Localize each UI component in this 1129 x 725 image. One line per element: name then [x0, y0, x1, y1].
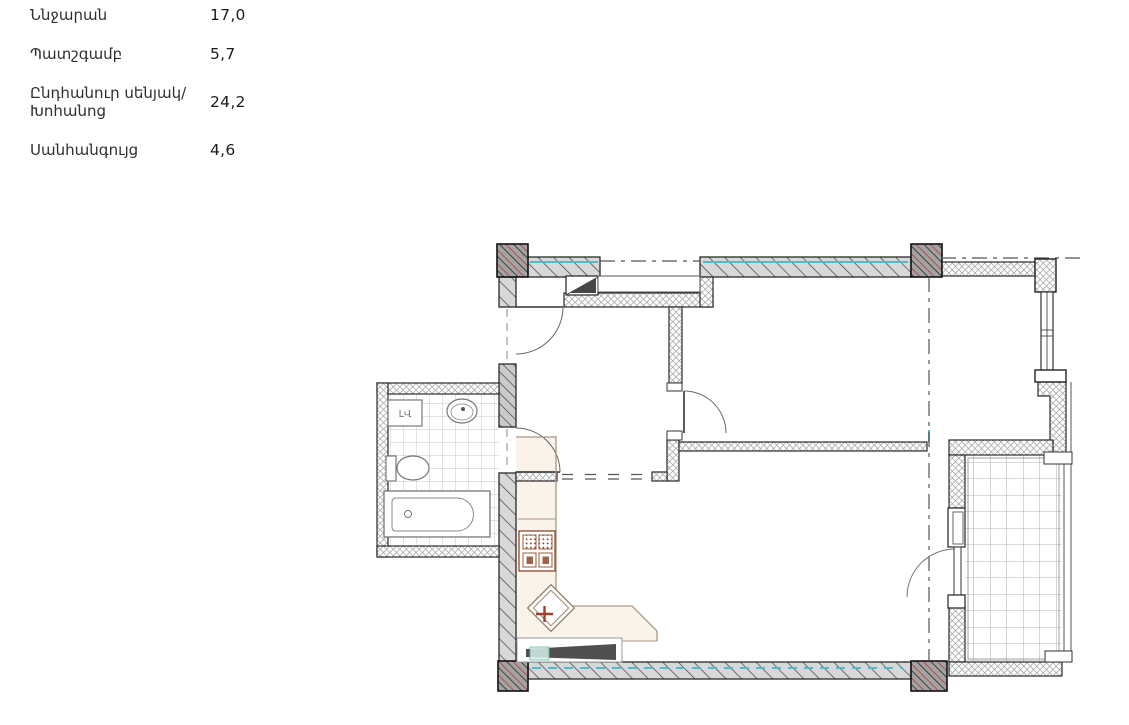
left-wall-lower	[499, 473, 516, 662]
bedroom-door-arc	[684, 391, 726, 433]
column-bottom-left	[498, 661, 528, 691]
kitchen-partition-stub	[652, 472, 667, 481]
bottom-wall	[528, 662, 911, 679]
kitchen-partition	[516, 472, 557, 481]
wall-niche	[598, 276, 700, 292]
column-bottom-right	[911, 661, 947, 691]
entry-door-arc	[516, 307, 563, 354]
toilet	[386, 456, 429, 481]
kitchen-stove	[519, 531, 555, 571]
bathroom-north-wall	[377, 383, 499, 394]
bedroom-west-wall	[669, 307, 682, 383]
column-top-right	[911, 244, 942, 277]
floorplan-page: Ննջարան 17,0 Պատշգամբ 5,7 Ընդհանուր սենյ…	[0, 0, 1129, 725]
top-wall-right-segment	[700, 257, 911, 277]
column-top-left	[497, 244, 528, 277]
balcony-west-wall-lower	[949, 607, 965, 662]
bathtub	[384, 491, 490, 537]
balcony-sill-top	[1044, 452, 1072, 464]
floor-plan-drawing: ԼՎ	[0, 0, 1129, 725]
duct-niche-right-wall	[700, 277, 713, 307]
ventilation-shaft	[566, 276, 700, 295]
entry-door	[507, 307, 563, 362]
balcony-west-wall-upper	[949, 455, 965, 508]
balcony-door-arc	[907, 549, 955, 597]
balcony-north-wall	[949, 440, 1053, 455]
bathroom-south-wall	[377, 546, 499, 557]
balcony-door-leaf	[954, 547, 961, 596]
bedroom-window	[1035, 259, 1066, 382]
washing-machine-label: ԼՎ	[399, 409, 412, 420]
bedroom-door	[667, 383, 726, 440]
bathroom-sink	[447, 399, 477, 423]
top-wall-left-segment	[527, 257, 600, 277]
balcony-sill-bottom	[1045, 651, 1072, 662]
washing-machine: ԼՎ	[388, 400, 422, 426]
bathtub-drain	[405, 511, 412, 518]
balcony-south-wall	[949, 662, 1062, 676]
left-wall-middle	[499, 364, 516, 427]
bedroom-wall-connector	[667, 440, 679, 481]
balcony-floor-tiles	[965, 455, 1062, 662]
kitchen-opening-dashes	[562, 475, 652, 480]
left-wall-upper	[499, 277, 516, 307]
bedroom-south-wall	[679, 442, 927, 451]
parapet-top-right	[941, 262, 1035, 276]
kitchen-windowsill-unit	[517, 638, 622, 662]
balcony-door	[907, 508, 965, 608]
